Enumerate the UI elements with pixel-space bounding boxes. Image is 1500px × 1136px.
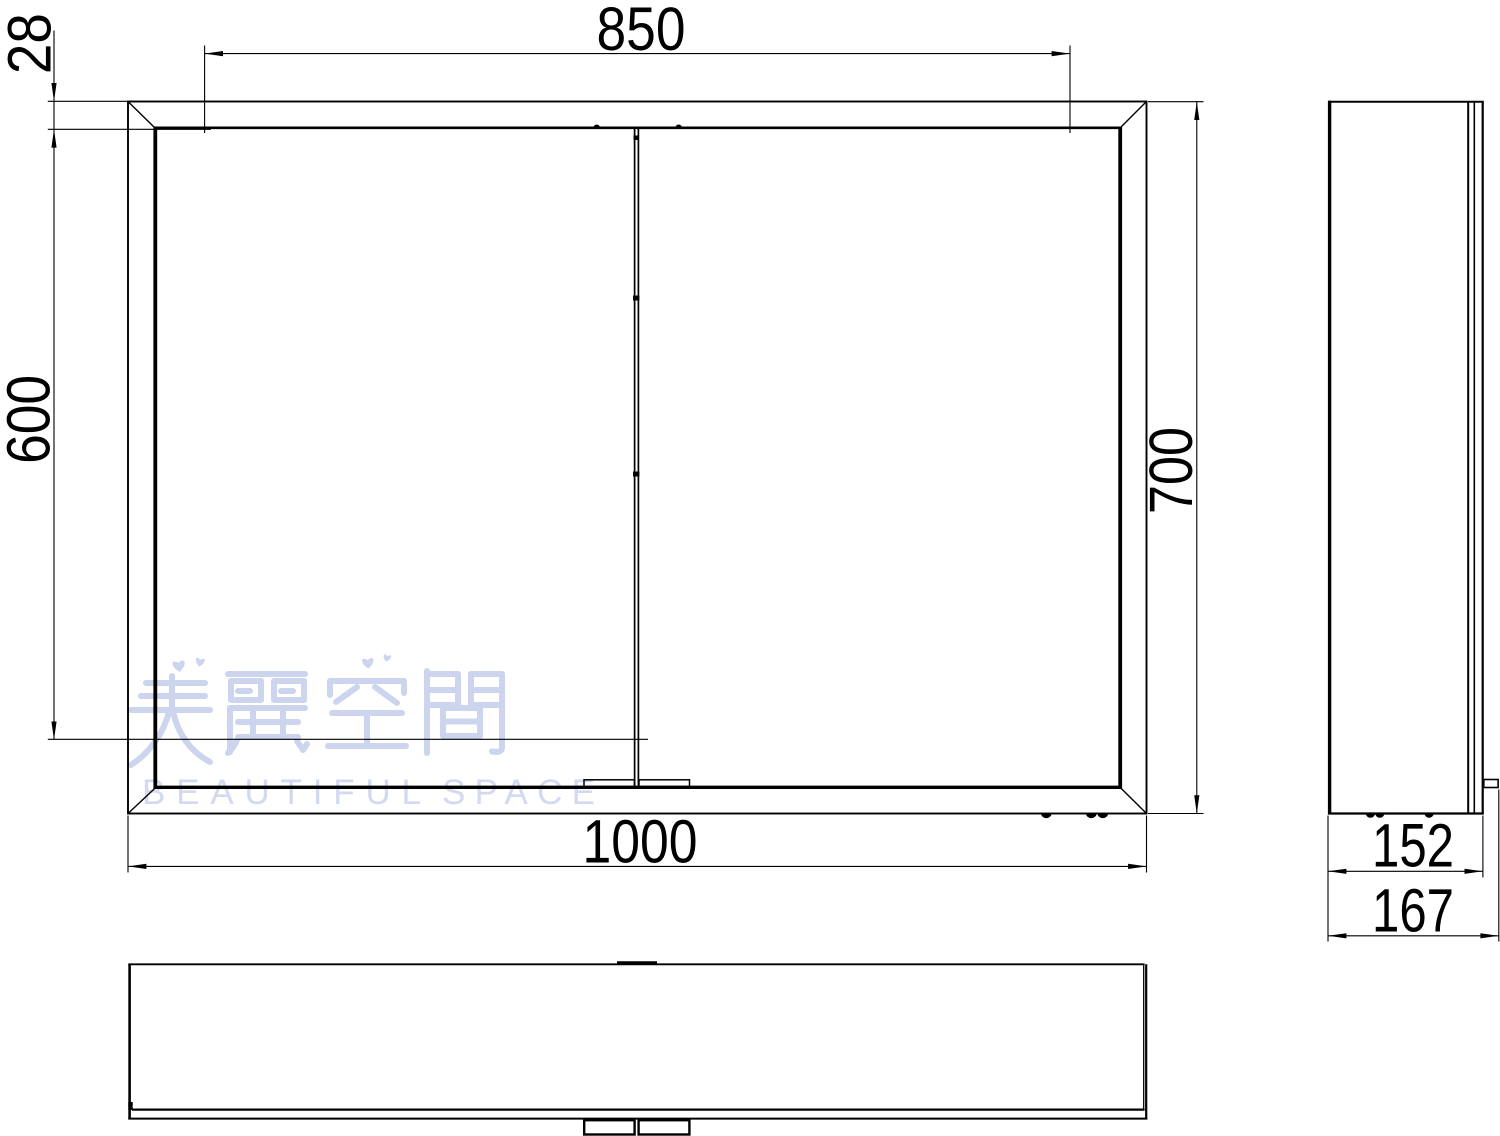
svg-text:SPACE: SPACE [442,773,595,812]
svg-text:BEAUTIFUL: BEAUTIFUL [142,773,421,812]
svg-text:167: 167 [1372,877,1454,945]
svg-text:28: 28 [0,13,64,74]
svg-text:1000: 1000 [583,808,698,876]
svg-text:152: 152 [1372,812,1454,880]
svg-text:600: 600 [0,375,62,464]
svg-text:700: 700 [1137,427,1205,514]
svg-text:850: 850 [597,0,686,63]
